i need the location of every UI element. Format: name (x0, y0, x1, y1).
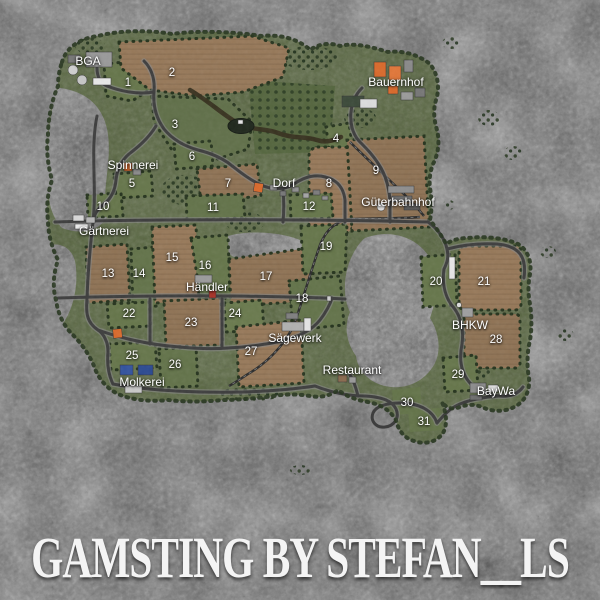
map-screenshot: 1234567891011121314151617181920212223242… (0, 0, 600, 600)
map-artwork (0, 0, 600, 600)
map-title: GAMSTING BY STEFAN__LS (18, 524, 582, 591)
